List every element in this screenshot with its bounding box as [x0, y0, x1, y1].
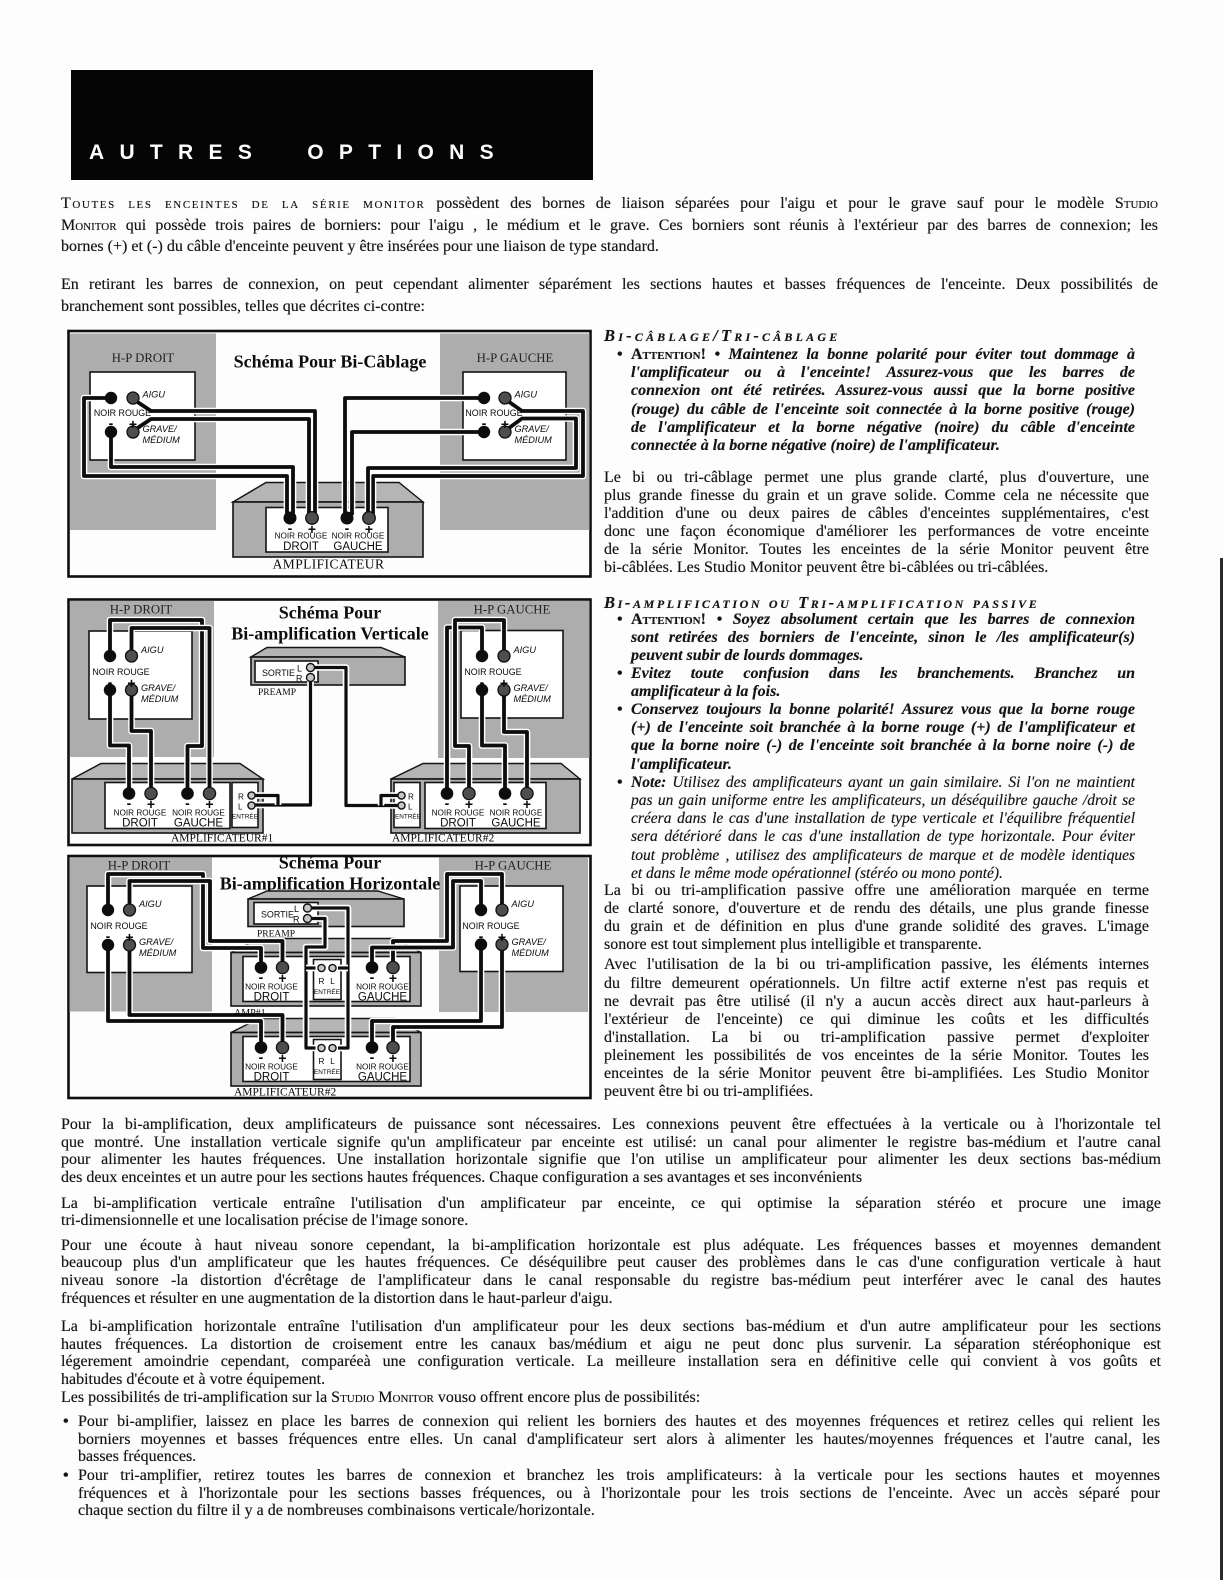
svg-text:GRAVE/: GRAVE/ — [514, 683, 550, 693]
svg-text:AIGU: AIGU — [511, 899, 535, 909]
svg-text:MÉDIUM: MÉDIUM — [141, 694, 179, 704]
svg-text:-: - — [127, 795, 132, 811]
svg-text:-: - — [480, 674, 485, 690]
svg-text:L: L — [297, 664, 302, 674]
svg-text:AMPLIFICATEUR#2: AMPLIFICATEUR#2 — [234, 1087, 336, 1099]
svg-text:ENTRÉE: ENTRÉE — [314, 987, 340, 996]
svg-text:NOIR ROUGE: NOIR ROUGE — [275, 532, 328, 541]
svg-text:NOIR ROUGE: NOIR ROUGE — [490, 809, 543, 818]
svg-text:R: R — [296, 674, 302, 684]
svg-text:AMP#1: AMP#1 — [234, 1008, 266, 1019]
svg-text:-: - — [503, 795, 508, 811]
svg-text:R: R — [319, 1057, 325, 1066]
svg-text:AIGU: AIGU — [142, 390, 166, 400]
svg-text:SORTIE: SORTIE — [261, 910, 294, 920]
svg-text:ENTRÉE: ENTRÉE — [314, 1067, 340, 1076]
svg-text:NOIR ROUGE: NOIR ROUGE — [92, 667, 149, 677]
svg-text:+: + — [278, 1050, 286, 1066]
svg-text:GAUCHE: GAUCHE — [333, 541, 383, 553]
svg-text:+: + — [127, 675, 135, 691]
svg-text:+: + — [147, 796, 155, 812]
svg-text:MÉDIUM: MÉDIUM — [515, 435, 553, 445]
svg-text:-: - — [345, 520, 350, 536]
svg-text:-: - — [259, 1049, 264, 1065]
svg-text:GRAVE/: GRAVE/ — [515, 424, 551, 434]
svg-text:-: - — [185, 795, 190, 811]
svg-text:-: - — [370, 969, 375, 985]
svg-text:L: L — [238, 803, 243, 812]
svg-text:Bi-amplification Horizontale: Bi-amplification Horizontale — [220, 874, 440, 894]
svg-text:SORTIE: SORTIE — [262, 668, 295, 678]
svg-text:GRAVE/: GRAVE/ — [139, 937, 175, 947]
svg-text:-: - — [106, 928, 111, 944]
svg-text:+: + — [500, 675, 508, 691]
svg-text:AMPLIFICATEUR#2: AMPLIFICATEUR#2 — [392, 833, 494, 845]
svg-text:AIGU: AIGU — [140, 645, 164, 655]
svg-text:+: + — [465, 796, 473, 812]
svg-text:+: + — [523, 796, 531, 812]
svg-text:-: - — [370, 1049, 375, 1065]
svg-text:NOIR ROUGE: NOIR ROUGE — [172, 809, 225, 818]
svg-text:MÉDIUM: MÉDIUM — [143, 435, 181, 445]
svg-text:GAUCHE: GAUCHE — [174, 818, 224, 830]
svg-text:NOIR ROUGE: NOIR ROUGE — [90, 921, 147, 931]
svg-text:-: - — [259, 969, 264, 985]
svg-text:+: + — [125, 929, 133, 945]
svg-text:-: - — [482, 415, 487, 431]
svg-text:+: + — [205, 796, 213, 812]
svg-text:Schéma Pour Bi-Câblage: Schéma Pour Bi-Câblage — [234, 352, 427, 372]
svg-text:+: + — [498, 929, 506, 945]
svg-text:NOIR ROUGE: NOIR ROUGE — [332, 532, 385, 541]
svg-text:L: L — [330, 977, 335, 986]
svg-text:+: + — [308, 521, 316, 537]
svg-text:NOIR ROUGE: NOIR ROUGE — [356, 983, 409, 992]
svg-text:GAUCHE: GAUCHE — [491, 818, 541, 830]
svg-text:GAUCHE: GAUCHE — [358, 992, 408, 1004]
svg-text:H-P GAUCHE: H-P GAUCHE — [474, 603, 551, 617]
svg-text:NOIR ROUGE: NOIR ROUGE — [245, 1063, 298, 1072]
svg-text:PREAMP: PREAMP — [258, 688, 296, 698]
svg-text:H-P DROIT: H-P DROIT — [112, 351, 175, 365]
svg-text:R: R — [408, 793, 414, 802]
svg-text:Schéma Pour: Schéma Pour — [279, 603, 382, 623]
svg-text:PREAMP: PREAMP — [257, 930, 295, 940]
svg-text:R: R — [238, 793, 244, 802]
svg-text:ENTRÉE: ENTRÉE — [232, 812, 258, 821]
svg-text:-: - — [108, 674, 113, 690]
svg-text:L: L — [330, 1057, 335, 1066]
svg-text:Schéma Pour: Schéma Pour — [279, 853, 382, 873]
svg-text:Bi-amplification Verticale: Bi-amplification Verticale — [231, 624, 428, 644]
svg-text:+: + — [365, 521, 373, 537]
svg-text:MÉDIUM: MÉDIUM — [139, 948, 177, 958]
svg-text:GRAVE/: GRAVE/ — [143, 424, 179, 434]
svg-text:DROIT: DROIT — [283, 541, 319, 553]
svg-text:H-P GAUCHE: H-P GAUCHE — [477, 351, 554, 365]
svg-text:NOIR ROUGE: NOIR ROUGE — [245, 983, 298, 992]
svg-text:+: + — [389, 1050, 397, 1066]
svg-text:+: + — [501, 416, 509, 432]
svg-text:L: L — [294, 904, 299, 914]
svg-text:NOIR ROUGE: NOIR ROUGE — [465, 408, 522, 418]
svg-text:-: - — [445, 795, 450, 811]
svg-text:-: - — [288, 520, 293, 536]
svg-text:NOIR ROUGE: NOIR ROUGE — [114, 809, 167, 818]
svg-text:MÉDIUM: MÉDIUM — [514, 694, 552, 704]
svg-text:NOIR ROUGE: NOIR ROUGE — [464, 667, 521, 677]
svg-text:NOIR ROUGE: NOIR ROUGE — [94, 408, 151, 418]
svg-text:-: - — [479, 928, 484, 944]
svg-text:DROIT: DROIT — [440, 818, 476, 830]
svg-text:NOIR ROUGE: NOIR ROUGE — [432, 809, 485, 818]
svg-text:R: R — [319, 977, 325, 986]
svg-text:NOIR ROUGE: NOIR ROUGE — [356, 1063, 409, 1072]
svg-text:+: + — [389, 970, 397, 986]
svg-text:MÉDIUM: MÉDIUM — [512, 948, 550, 958]
svg-text:GRAVE/: GRAVE/ — [141, 683, 177, 693]
svg-text:H-P DROIT: H-P DROIT — [110, 603, 173, 617]
svg-text:DROIT: DROIT — [254, 992, 290, 1004]
svg-text:NOIR ROUGE: NOIR ROUGE — [462, 921, 519, 931]
svg-text:AIGU: AIGU — [514, 390, 538, 400]
svg-text:H-P GAUCHE: H-P GAUCHE — [475, 859, 552, 873]
svg-text:AMPLIFICATEUR: AMPLIFICATEUR — [273, 557, 385, 572]
svg-text:AIGU: AIGU — [138, 899, 162, 909]
svg-text:-: - — [109, 415, 114, 431]
svg-text:L: L — [408, 803, 413, 812]
svg-text:+: + — [278, 970, 286, 986]
svg-text:GAUCHE: GAUCHE — [358, 1072, 408, 1084]
svg-text:ENTRÉE: ENTRÉE — [395, 812, 421, 821]
svg-text:AIGU: AIGU — [513, 645, 537, 655]
svg-text:R: R — [293, 915, 299, 925]
svg-text:H-P DROIT: H-P DROIT — [108, 859, 171, 873]
svg-text:AMPLIFICATEUR#1: AMPLIFICATEUR#1 — [171, 833, 273, 845]
svg-text:+: + — [129, 416, 137, 432]
svg-text:DROIT: DROIT — [254, 1072, 290, 1084]
svg-text:DROIT: DROIT — [122, 818, 158, 830]
svg-text:GRAVE/: GRAVE/ — [512, 937, 548, 947]
